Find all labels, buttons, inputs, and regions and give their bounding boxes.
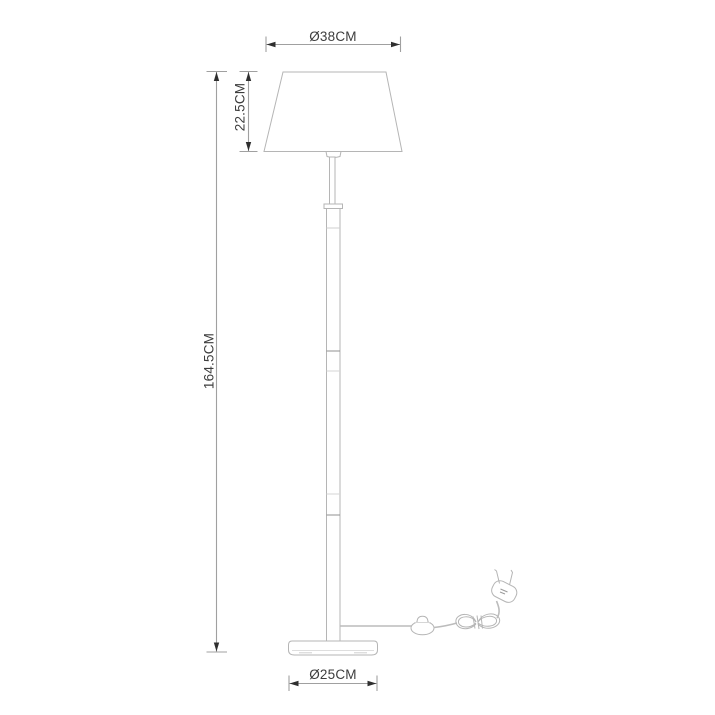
dim-arrow-down [246,142,251,151]
cord-to-coil [434,623,457,628]
dimension-base-diameter: Ø25CM [289,667,377,691]
pole-cap [324,204,343,209]
dimension-shade-diameter: Ø38CM [266,29,401,52]
power-plug [489,570,519,605]
dim-arrow-right [391,42,400,47]
lamp-drawing [264,72,519,655]
dim-arrow-up [246,72,251,81]
pole [327,209,341,642]
stem-rod [330,157,336,204]
dim-arrow-down [214,643,219,652]
dimension-label-shade-height: 22.5CM [233,83,248,131]
dimension-shade-height: 22.5CM [233,72,258,152]
dim-arrow-right [368,681,377,686]
dim-arrow-up [214,72,219,81]
dimension-label-shade-diameter: Ø38CM [309,29,357,44]
technical-drawing-canvas: Ø38CM 22.5CM 164.5CM Ø25CM [0,0,715,715]
dimension-label-total-height: 164.5CM [202,333,217,389]
plug-prong-right [510,570,513,585]
dim-arrow-left [267,42,276,47]
dim-arrow-left [290,681,299,686]
dimension-total-height: 164.5CM [202,72,228,653]
floor-lamp-diagram: Ø38CM 22.5CM 164.5CM Ø25CM [0,0,715,715]
inline-switch [411,616,434,635]
coiled-cord [456,614,500,629]
lampshade [264,72,402,152]
dimension-label-base-diameter: Ø25CM [309,667,357,682]
